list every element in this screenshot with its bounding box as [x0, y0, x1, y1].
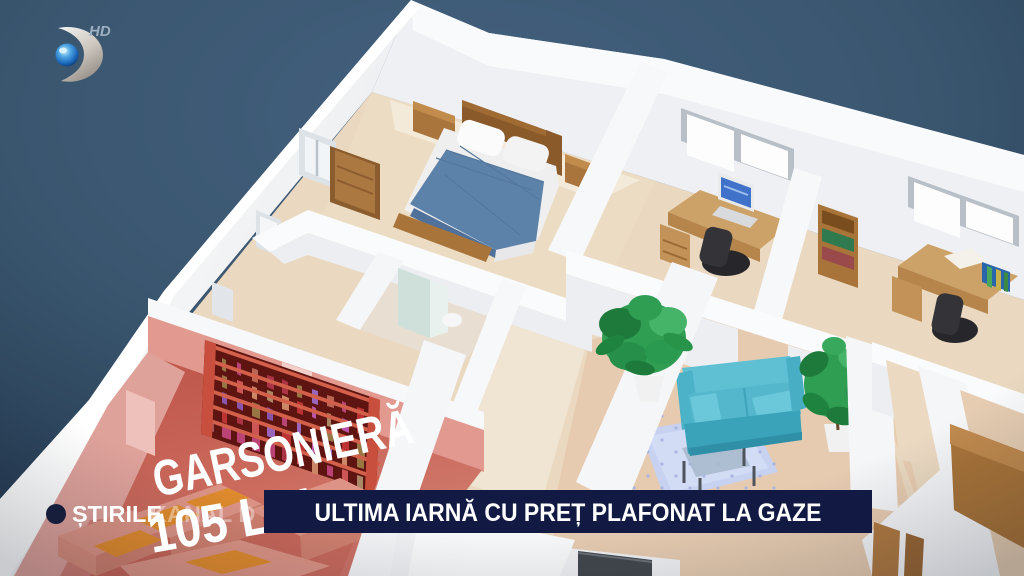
svg-text:HD: HD: [89, 23, 111, 40]
svg-text:ȘTIRILE: ȘTIRILE: [72, 501, 162, 528]
svg-text:KANAL D: KANAL D: [150, 501, 255, 527]
svg-text:ULTIMA IARNĂ CU PREȚ PLAFONAT: ULTIMA IARNĂ CU PREȚ PLAFONAT LA GAZE: [315, 498, 822, 527]
